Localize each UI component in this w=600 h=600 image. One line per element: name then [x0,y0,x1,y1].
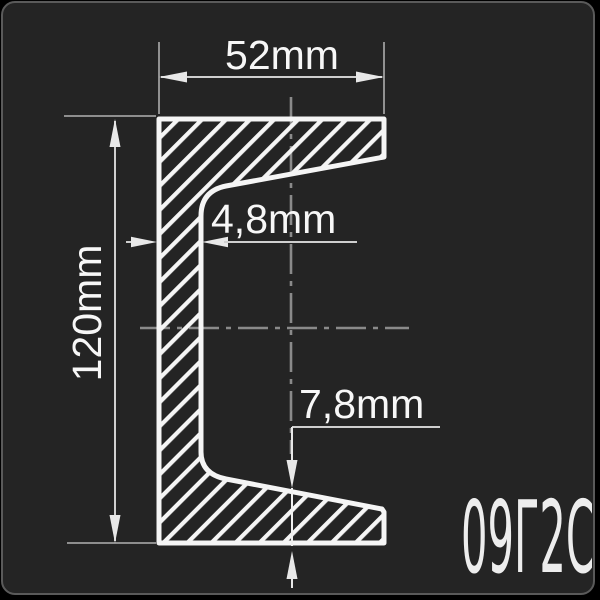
drawing-card: 52mm 120mm 4,8mm 7,8mm [1,1,595,595]
channel-profile-drawing: 52mm 120mm 4,8mm 7,8mm [3,3,592,592]
dimension-flange-thickness: 7,8mm [287,381,441,588]
dimension-profile-height: 120mm [64,116,156,543]
dimension-flange-width: 52mm [159,32,384,114]
steel-grade-label: 09Г2С [461,479,592,592]
flange-width-label: 52mm [225,32,339,78]
arrowhead-up [287,551,298,579]
arrowhead-left [159,72,187,83]
profile-height-label: 120mm [64,245,110,382]
arrowhead-down [287,460,298,488]
arrowhead-right [356,72,384,83]
arrowhead-bottom [110,515,121,543]
web-thickness-label: 4,8mm [211,196,336,242]
flange-thickness-label: 7,8mm [299,381,424,427]
arrowhead-top [110,119,121,147]
channel-profile-shape [159,119,384,543]
arrowhead-left [131,237,157,247]
